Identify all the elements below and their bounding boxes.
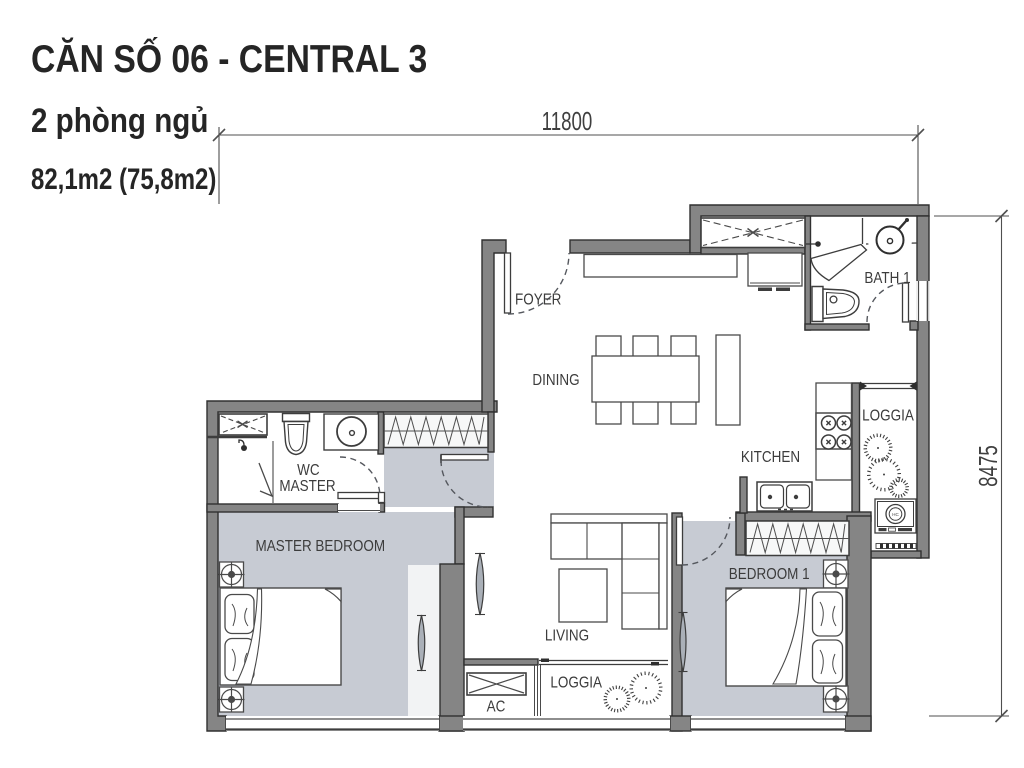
svg-text:AC: AC (487, 699, 506, 716)
svg-text:HC: HC (892, 512, 899, 517)
svg-text:LOGGIA: LOGGIA (550, 675, 602, 692)
svg-text:MASTER: MASTER (279, 478, 335, 495)
svg-text:82,1m2 (75,8m2): 82,1m2 (75,8m2) (31, 161, 216, 195)
svg-text:FOYER: FOYER (515, 292, 561, 309)
svg-text:11800: 11800 (542, 106, 593, 136)
svg-text:CĂN SỐ 06 - CENTRAL 3: CĂN SỐ 06 - CENTRAL 3 (31, 36, 427, 81)
svg-text:BATH 1: BATH 1 (864, 270, 910, 287)
svg-text:LIVING: LIVING (545, 628, 589, 645)
svg-text:8475: 8475 (973, 445, 1003, 487)
svg-text:BEDROOM 1: BEDROOM 1 (729, 566, 810, 583)
svg-text:KITCHEN: KITCHEN (741, 449, 800, 466)
svg-text:2 phòng ngủ: 2 phòng ngủ (31, 101, 208, 139)
svg-text:WC: WC (297, 462, 319, 479)
svg-text:DINING: DINING (532, 372, 579, 389)
svg-text:MASTER BEDROOM: MASTER BEDROOM (256, 538, 386, 555)
svg-text:LOGGIA: LOGGIA (862, 408, 914, 425)
